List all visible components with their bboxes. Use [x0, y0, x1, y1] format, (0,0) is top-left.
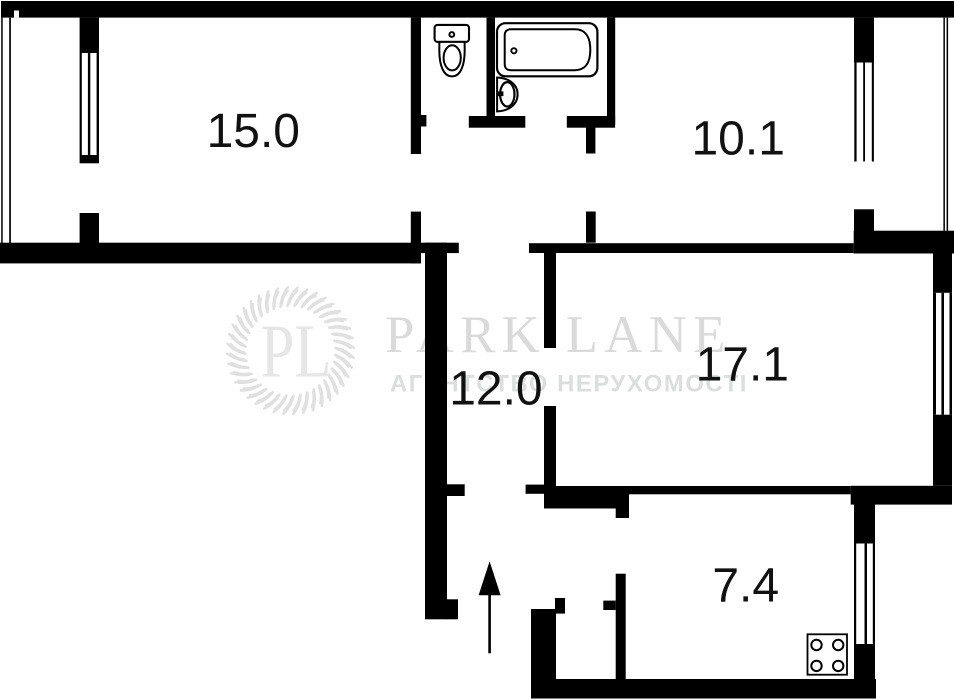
svg-text:15.0: 15.0 — [207, 105, 300, 158]
svg-text:PL: PL — [261, 309, 332, 393]
svg-text:7.4: 7.4 — [712, 560, 779, 613]
svg-text:12.0: 12.0 — [449, 363, 542, 416]
svg-text:17.1: 17.1 — [696, 339, 789, 392]
svg-text:10.1: 10.1 — [691, 113, 784, 166]
